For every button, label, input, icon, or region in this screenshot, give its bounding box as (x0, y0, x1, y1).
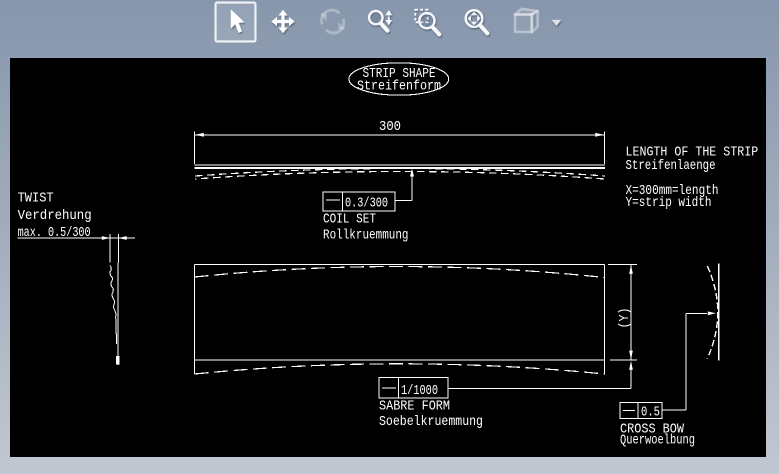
svg-text:Streifenlaenge: Streifenlaenge (626, 158, 716, 174)
svg-text:TWIST: TWIST (18, 191, 54, 207)
svg-text:Soebelkruemmung: Soebelkruemmung (379, 414, 483, 430)
svg-text:Y=strip width: Y=strip width (626, 195, 712, 211)
svg-text:(Y): (Y) (617, 308, 633, 329)
svg-text:1/1000: 1/1000 (401, 383, 438, 399)
svg-text:0.5: 0.5 (641, 405, 660, 421)
svg-text:max. 0.5/300: max. 0.5/300 (18, 225, 91, 241)
svg-text:Rollkruemmung: Rollkruemmung (323, 228, 409, 244)
svg-text:Streifenform: Streifenform (357, 79, 441, 95)
svg-text:Verdrehung: Verdrehung (18, 208, 92, 224)
svg-text:COIL SET: COIL SET (323, 212, 376, 228)
svg-text:Querwoelbung: Querwoelbung (620, 433, 695, 449)
svg-text:SABRE FORM: SABRE FORM (379, 399, 450, 415)
svg-text:0.3/300: 0.3/300 (345, 196, 388, 212)
svg-text:300: 300 (379, 119, 401, 135)
